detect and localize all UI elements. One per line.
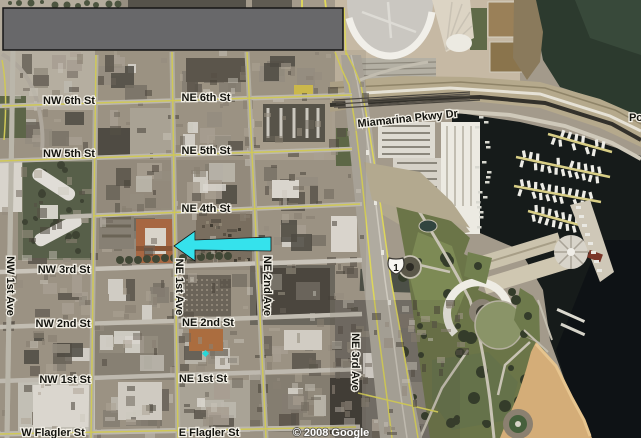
svg-text:W Flagler St: W Flagler St [21, 427, 85, 438]
svg-text:NE 2nd Ave: NE 2nd Ave [261, 256, 273, 316]
svg-text:E Flagler St: E Flagler St [179, 427, 240, 438]
svg-text:NE 1st Ave: NE 1st Ave [173, 259, 185, 316]
svg-text:NW 1st St: NW 1st St [39, 374, 91, 386]
svg-text:NW 5th St: NW 5th St [43, 148, 95, 160]
svg-text:NE 2nd St: NE 2nd St [182, 317, 234, 329]
svg-text:NE 1st St: NE 1st St [179, 373, 228, 385]
svg-text:NE 3rd Ave: NE 3rd Ave [349, 333, 361, 391]
svg-text:NW 6th St: NW 6th St [43, 95, 95, 107]
svg-text:Po: Po [629, 112, 641, 124]
svg-text:NW 1st Ave: NW 1st Ave [4, 256, 16, 316]
svg-text:© 2008 Google: © 2008 Google [293, 427, 370, 438]
svg-text:NE 5th St: NE 5th St [182, 145, 231, 157]
svg-text:NE 6th St: NE 6th St [182, 92, 231, 104]
svg-text:NE 4th St: NE 4th St [182, 203, 231, 215]
svg-text:1: 1 [393, 263, 399, 274]
svg-text:NW 3rd St: NW 3rd St [38, 264, 91, 276]
svg-text:NW 2nd St: NW 2nd St [36, 318, 91, 330]
